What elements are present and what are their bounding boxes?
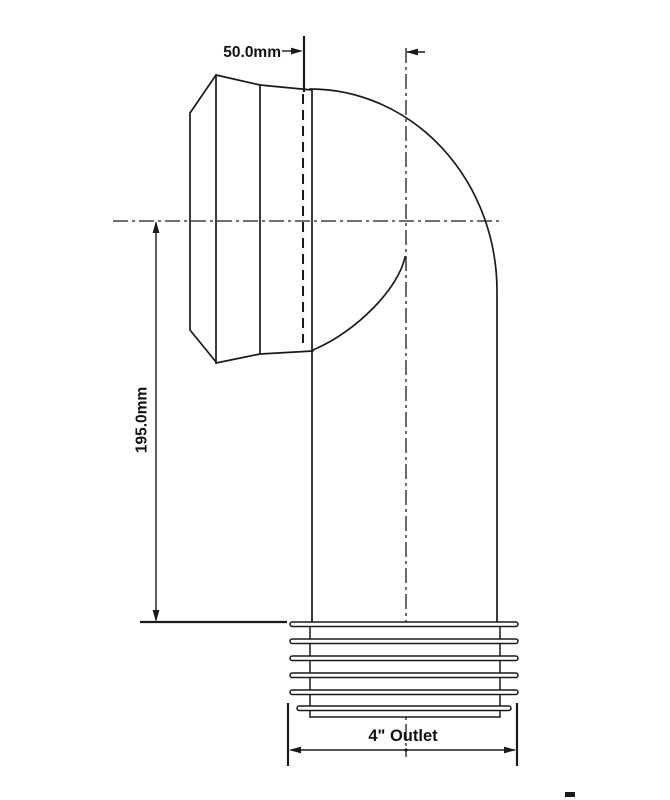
outlet-fin [290, 639, 518, 644]
height-arrow-up-icon [153, 221, 160, 233]
height-arrow-down-icon [153, 610, 160, 622]
offset-dimension-label: 50.0mm [223, 44, 281, 61]
cup-bottom-edge [216, 351, 313, 363]
outlet-fin [297, 706, 511, 711]
bend-inner-arc [313, 257, 405, 350]
outlet-arrow-right-icon [504, 747, 516, 754]
outlet-core [310, 624, 500, 717]
outlet-fin [290, 690, 518, 695]
outlet-arrow-left-icon [289, 747, 301, 754]
drawing-canvas: 50.0mm 195.0mm 4" Outlet [0, 0, 670, 800]
technical-drawing: 50.0mm 195.0mm 4" Outlet [0, 0, 670, 800]
offset-arrow-right-icon [291, 48, 303, 55]
cup-top-edge [216, 75, 312, 90]
page-corner-mark [565, 792, 575, 797]
pan-inlet-cup [190, 75, 313, 363]
outlet-fin [290, 622, 518, 627]
bend-outer-arc-and-right-wall [310, 89, 497, 622]
offset-arrow-left-icon [406, 49, 418, 56]
outlet-center-tick [404, 748, 407, 751]
finned-outlet [290, 622, 518, 717]
cup-left-face [190, 75, 216, 362]
outlet-fin [290, 656, 518, 661]
outlet-fin [290, 673, 518, 678]
elbow-body [310, 89, 497, 622]
dimension-height: 195.0mm [133, 221, 287, 622]
outlet-dimension-label: 4" Outlet [368, 727, 438, 745]
height-dimension-label: 195.0mm [133, 387, 150, 453]
